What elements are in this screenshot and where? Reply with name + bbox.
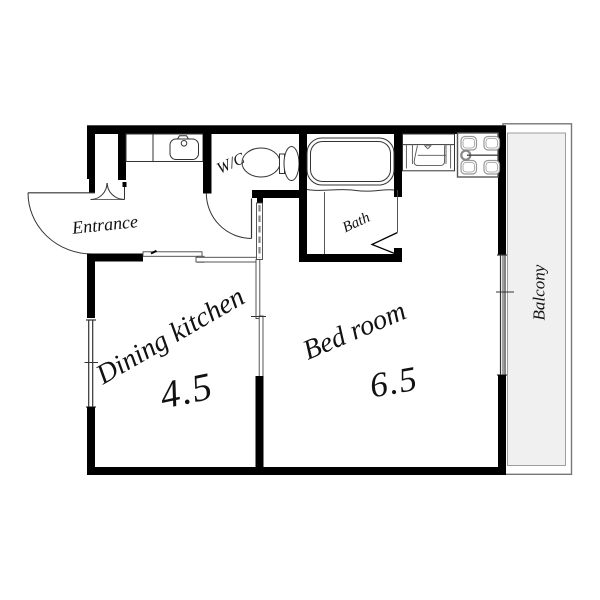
svg-text:Balcony: Balcony	[529, 264, 548, 320]
svg-text:6.5: 6.5	[367, 359, 421, 406]
